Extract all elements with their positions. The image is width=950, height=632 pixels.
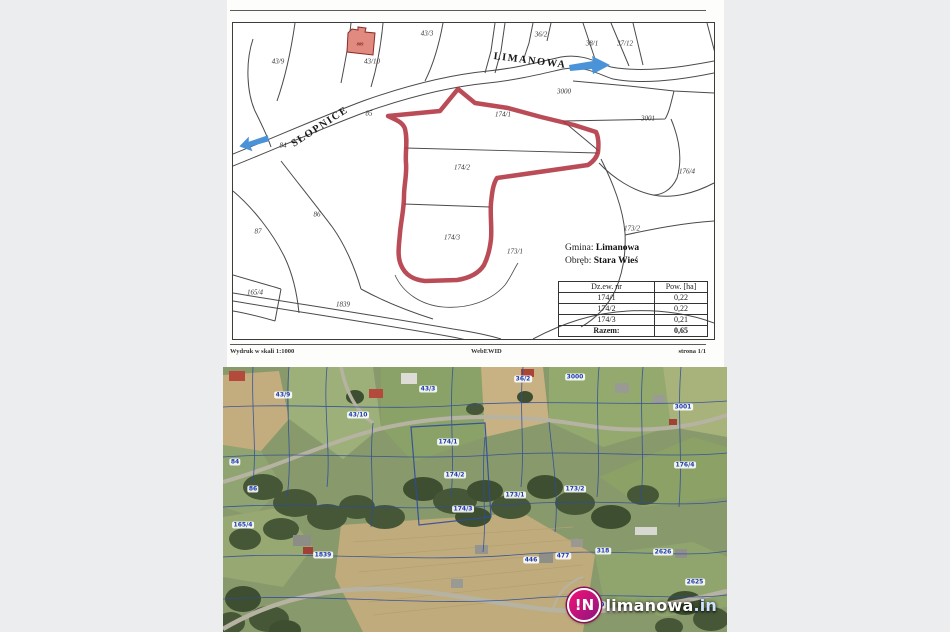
sat-parcel-label: 174/1	[437, 439, 459, 446]
obreb-value: Stara Wieś	[594, 256, 638, 266]
col-header-area: Pow. [ha]	[655, 282, 708, 293]
cell-area: 0,22	[655, 293, 708, 304]
sat-parcel-label: 174/3	[452, 506, 474, 513]
parcel-label: 3001	[641, 116, 655, 123]
parcel-label: 85	[366, 111, 373, 118]
cell-parcel-nr: 174/2	[559, 304, 655, 315]
logo-name: limanowa	[605, 596, 693, 615]
sat-parcel-label: 2626	[653, 549, 673, 556]
parcel-label: 43/9	[272, 59, 284, 66]
gmina-value: Limanowa	[596, 243, 639, 253]
logo-tld: .in	[693, 596, 717, 615]
cell-parcel-nr: 174/3	[559, 315, 655, 326]
sat-parcel-label: 1839	[313, 552, 333, 559]
satellite-image[interactable]: 43/9 43/10 43/3 36/2 3000 3001 174/1 174…	[223, 367, 727, 632]
municipality-info: Gmina: Limanowa Obręb: Stara Wieś	[565, 242, 639, 268]
document-footer: Wydruk w skali 1:1000 WebEWID strona 1/1	[230, 348, 706, 355]
sat-parcel-label: 477	[555, 553, 571, 560]
cell-total-area: 0,65	[655, 326, 708, 337]
parcel-label: 86	[314, 212, 321, 219]
parcel-label: 38/1	[586, 41, 598, 48]
sat-parcel-label: 2625	[685, 579, 705, 586]
table-row: 174/2 0,22	[559, 304, 708, 315]
parcel-label: 3000	[557, 89, 571, 96]
sat-parcel-label: 36/2	[514, 376, 532, 383]
table-total-row: Razem: 0,65	[559, 326, 708, 337]
footer-page: strona 1/1	[678, 348, 706, 355]
sat-parcel-label: 446	[523, 557, 539, 564]
table-row: 174/1 0,22	[559, 293, 708, 304]
parcel-label: 174/3	[444, 235, 460, 242]
sat-parcel-label: 165/4	[232, 522, 254, 529]
parcel-label: 37/12	[617, 41, 633, 48]
sat-parcel-label: 43/3	[419, 386, 437, 393]
limanowa-logo-icon: !N	[567, 588, 601, 622]
sat-parcel-label: 43/9	[274, 392, 292, 399]
document-bottom-rule	[230, 344, 706, 345]
sat-parcel-label: 173/1	[504, 492, 526, 499]
parcel-label: 43/3	[421, 31, 433, 38]
table-header-row: Dz.ew. nr Pow. [ha]	[559, 282, 708, 293]
limanowa-in-watermark: !N limanowa.in	[567, 588, 717, 622]
parcel-label: 165/4	[247, 290, 263, 297]
parcel-label: 1839	[336, 302, 350, 309]
sat-parcel-label: 43/10	[347, 412, 369, 419]
sat-parcel-label: 318	[595, 548, 611, 555]
sat-parcel-label: 3000	[565, 374, 585, 381]
parcel-label: 36/2	[535, 32, 547, 39]
sat-parcel-label: 86	[247, 486, 258, 493]
sat-parcel-label: 173/2	[564, 486, 586, 493]
cell-total-label: Razem:	[559, 326, 655, 337]
parcel-label: 176/4	[679, 169, 695, 176]
sat-parcel-label: 3001	[673, 404, 693, 411]
cell-parcel-nr: 174/1	[559, 293, 655, 304]
cadastral-document-image[interactable]: 43/9 43/10 43/3 36/2 38/1 37/12 3000 300…	[227, 0, 724, 367]
table-row: 174/3 0,21	[559, 315, 708, 326]
parcel-label: 87	[255, 229, 262, 236]
footer-scale: Wydruk w skali 1:1000	[230, 348, 294, 355]
parcel-label: 173/1	[507, 249, 523, 256]
footer-app: WebEWID	[471, 348, 502, 355]
document-top-rule	[230, 10, 706, 11]
sat-parcel-label: 174/2	[444, 472, 466, 479]
sat-parcel-label: 176/4	[674, 462, 696, 469]
parcel-label: 174/1	[495, 112, 511, 119]
parcel-label: 84	[280, 143, 287, 150]
gmina-label: Gmina:	[565, 243, 594, 253]
sat-parcel-label: 84	[229, 459, 240, 466]
limanowa-logo-text: limanowa.in	[605, 596, 717, 615]
building-number-label: 809	[357, 41, 364, 48]
col-header-parcel: Dz.ew. nr	[559, 282, 655, 293]
parcel-label: 43/10	[364, 59, 380, 66]
parcel-label: 173/2	[624, 226, 640, 233]
cell-area: 0,22	[655, 304, 708, 315]
obreb-label: Obręb:	[565, 256, 591, 266]
parcel-label: 174/2	[454, 165, 470, 172]
page: 43/9 43/10 43/3 36/2 38/1 37/12 3000 300…	[0, 0, 950, 632]
cell-area: 0,21	[655, 315, 708, 326]
parcel-area-table: Dz.ew. nr Pow. [ha] 174/1 0,22 174/2 0,2…	[558, 281, 708, 337]
